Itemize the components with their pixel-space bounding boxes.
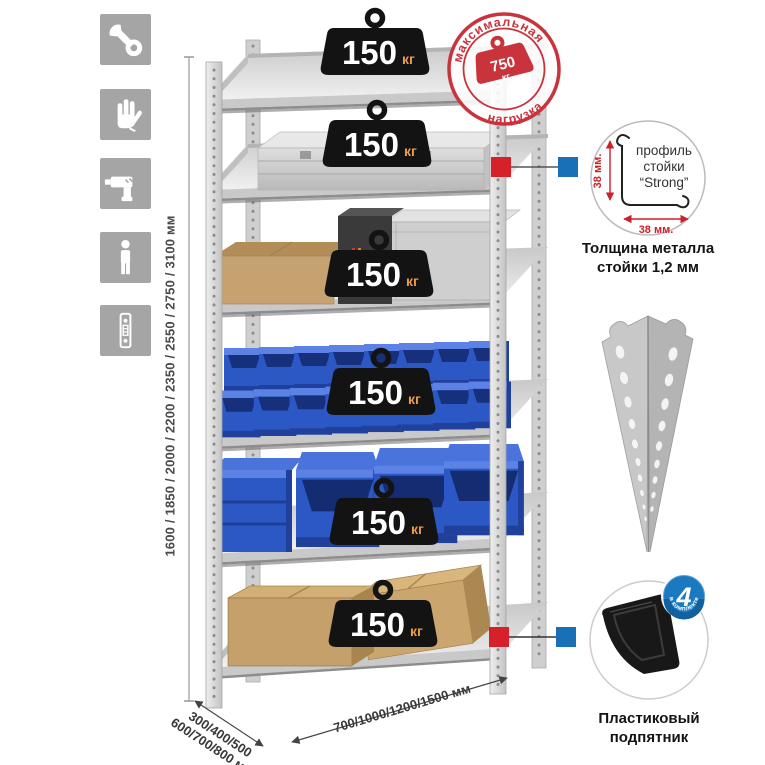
blue-marker-square-top — [558, 157, 578, 177]
profile-thickness-caption: Толщина металла стойки 1,2 мм — [558, 240, 738, 278]
product-infographic: 38 мм. 38 мм. профиль стойки “Strong” в … — [0, 0, 765, 765]
badge-value: 4 — [675, 582, 691, 612]
profile-label-3: “Strong” — [640, 175, 689, 190]
weight-unit: кг — [402, 51, 415, 67]
caption-line: Толщина металла — [558, 240, 738, 259]
weight-unit: кг — [410, 623, 423, 639]
weight-unit: кг — [406, 273, 419, 289]
blue-marker-square-bottom — [556, 627, 576, 647]
profile-label-2: стойки — [643, 159, 684, 174]
max-load-stamp: максимальная нагрузка 750 кг — [437, 2, 571, 138]
profile-label-1: профиль — [636, 143, 692, 158]
weight-value: 150 — [351, 504, 406, 541]
red-marker-square-bottom — [489, 627, 509, 647]
weight-value: 150 — [346, 256, 401, 293]
weight-value: 150 — [342, 34, 397, 71]
caption-line: Пластиковый — [559, 710, 739, 729]
profile-dim-horizontal: 38 мм. — [639, 224, 674, 236]
weight-icon-1: 150 кг — [321, 11, 430, 76]
plastic-foot-caption: Пластиковый подпятник — [559, 710, 739, 748]
red-marker-square-top — [491, 157, 511, 177]
weight-unit: кг — [411, 521, 424, 537]
weight-value: 150 — [350, 606, 405, 643]
caption-line: подпятник — [559, 729, 739, 748]
caption-line: стойки 1,2 мм — [558, 259, 738, 278]
profile-detail-circle: 38 мм. 38 мм. профиль стойки “Strong” — [591, 121, 705, 236]
weight-unit: кг — [408, 391, 421, 407]
weight-icon-2: 150 кг — [323, 103, 432, 168]
weight-unit: кг — [404, 143, 417, 159]
height-dimension-label: 1600 / 1850 / 2000 / 2200 / 2350 / 2550 … — [163, 215, 178, 556]
corner-profile-illustration — [602, 316, 693, 552]
weight-value: 150 — [344, 126, 399, 163]
profile-dim-vertical: 38 мм. — [592, 154, 604, 189]
included-qty-badge: в комплекте 4 — [661, 573, 707, 619]
weight-value: 150 — [348, 374, 403, 411]
plastic-foot-circle: в комплекте 4 — [590, 573, 708, 699]
blue-tote-box — [214, 458, 302, 552]
rack-diagram: 38 мм. 38 мм. профиль стойки “Strong” в … — [0, 0, 765, 765]
